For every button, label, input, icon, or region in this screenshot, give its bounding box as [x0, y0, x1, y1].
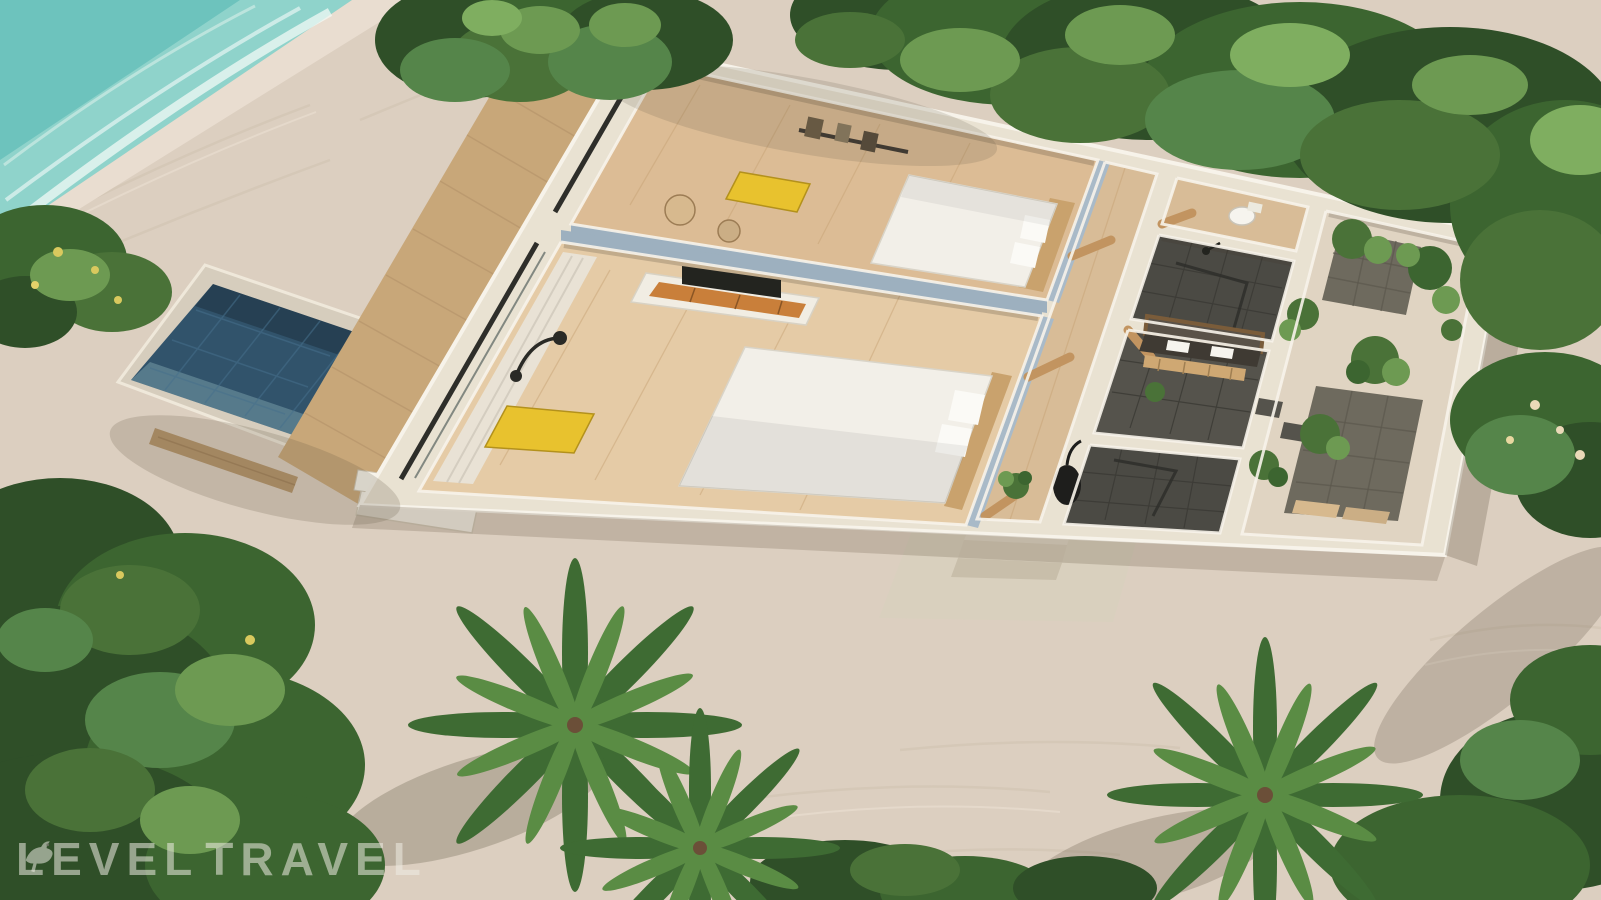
scene-canvas: LEVEL TRAVEL [0, 0, 1601, 900]
bird-icon [18, 836, 62, 880]
palm-crown [567, 717, 583, 733]
palm-crown [693, 841, 707, 855]
round-side-table [665, 195, 695, 225]
watermark: LEVEL TRAVEL [16, 836, 428, 882]
watermark-brand-right: TRAVEL [205, 836, 428, 882]
round-side-table [718, 220, 740, 242]
palm-crown [1257, 787, 1273, 803]
bath-plant [1145, 382, 1165, 402]
